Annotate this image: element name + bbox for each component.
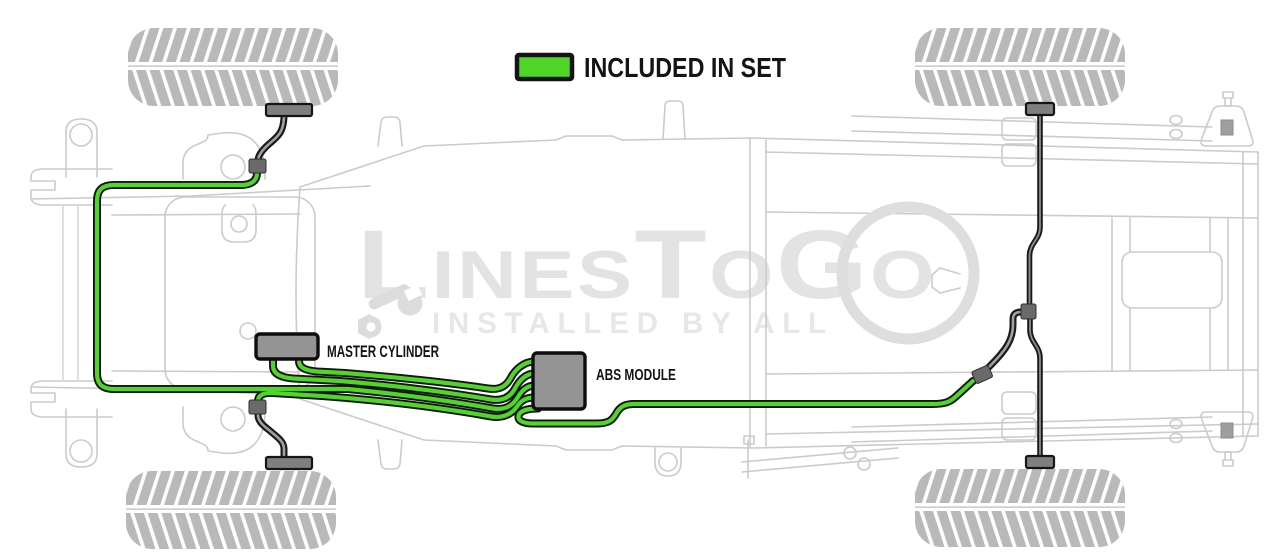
rear-axle-junction [1021, 304, 1036, 319]
master-cylinder [256, 334, 318, 359]
shackle-bolt [1223, 452, 1233, 466]
tie-rod [742, 448, 898, 472]
cab-outline-top [300, 136, 752, 187]
bracket-tab-mid-top [222, 205, 256, 242]
rear-top-caliper-bracket [1026, 103, 1054, 115]
front-right-brake-hose [258, 415, 284, 458]
tire-rear-right-top [915, 28, 1125, 106]
shackle-bushing [1221, 423, 1233, 438]
ball-joint [858, 458, 870, 470]
tab-hole [70, 440, 92, 462]
tab-hole [659, 453, 677, 471]
shackle-bushing [1221, 120, 1233, 135]
chassis-diagram: LinesToGo INSTALLED BY ALL [0, 0, 1280, 558]
fuel-tank [1122, 252, 1222, 308]
watermark: LinesToGo INSTALLED BY ALL [357, 210, 937, 340]
tire-front-left [128, 28, 338, 106]
frame-rail-top-left [31, 186, 370, 215]
shackle-bolt [1223, 92, 1233, 106]
body-mount-tab [378, 440, 402, 469]
tire-rear-right-bottom [915, 469, 1125, 547]
front-left-line-connector [249, 159, 266, 173]
included-color-swatch [517, 55, 572, 79]
front-crossmember [63, 205, 78, 381]
dome-hole [221, 155, 245, 179]
diagram-canvas: LinesToGo INSTALLED BY ALL [0, 0, 1280, 558]
spring-clip [1170, 116, 1182, 125]
dome-hole [221, 407, 245, 431]
legend-label: INCLUDED IN SET [584, 52, 786, 83]
spring-clip [1170, 420, 1182, 429]
bed-rail-top [752, 138, 1258, 218]
body-mount-tab [663, 101, 685, 139]
body-mount-tab [378, 117, 402, 146]
abs-module-label: ABS MODULE [596, 367, 676, 384]
front-right-line-connector [249, 400, 266, 414]
front-left-caliper-bracket [266, 104, 312, 116]
axle-seat [1002, 392, 1036, 414]
tab-hole [231, 216, 247, 232]
rear-bottom-caliper-bracket [1026, 456, 1054, 468]
front-left-brake-hose [258, 115, 284, 161]
master-cylinder-label: MASTER CYLINDER [327, 342, 439, 361]
watermark-tagline-text: INSTALLED BY ALL [432, 307, 834, 340]
tab-hole [70, 124, 92, 146]
leaf-spring-top [852, 116, 1212, 141]
abs-module [533, 353, 585, 409]
front-right-caliper-bracket [266, 457, 312, 469]
legend: INCLUDED IN SET [517, 52, 786, 83]
tab-hole [240, 323, 256, 339]
rear-feed-hose [984, 312, 1021, 372]
rear-end-crossmember [1243, 152, 1258, 436]
spring-clip [1170, 130, 1182, 139]
tire-front-right [126, 471, 336, 549]
axle-seat [1002, 144, 1036, 166]
